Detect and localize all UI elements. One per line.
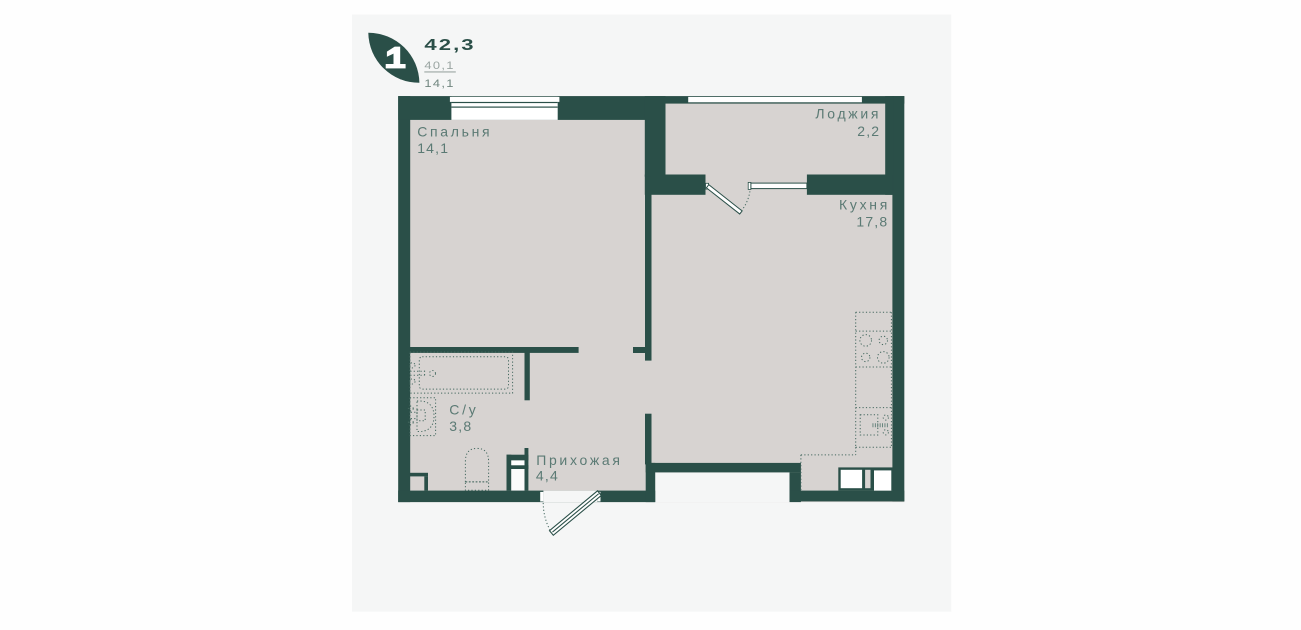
- svg-text:14,1: 14,1: [424, 77, 454, 90]
- svg-text:Спальня: Спальня: [417, 124, 492, 140]
- svg-text:С/у: С/у: [449, 402, 478, 418]
- svg-text:Кухня: Кухня: [839, 197, 890, 213]
- svg-text:17,8: 17,8: [856, 214, 888, 230]
- svg-text:2,2: 2,2: [857, 123, 880, 139]
- svg-text:40,1: 40,1: [424, 59, 454, 72]
- svg-text:42,3: 42,3: [424, 37, 475, 54]
- svg-text:Прихожая: Прихожая: [536, 452, 622, 468]
- svg-text:3,8: 3,8: [449, 418, 472, 434]
- svg-text:14,1: 14,1: [417, 140, 449, 156]
- svg-text:4,4: 4,4: [536, 468, 559, 484]
- svg-text:Лоджия: Лоджия: [815, 106, 881, 122]
